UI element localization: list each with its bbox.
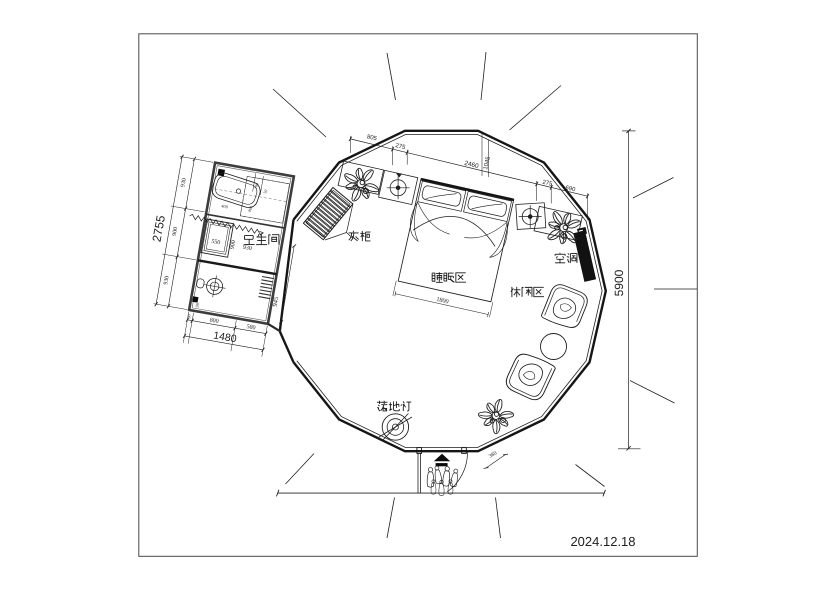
svg-text:2024.12.18: 2024.12.18 <box>570 534 635 549</box>
svg-text:5900: 5900 <box>612 269 626 296</box>
